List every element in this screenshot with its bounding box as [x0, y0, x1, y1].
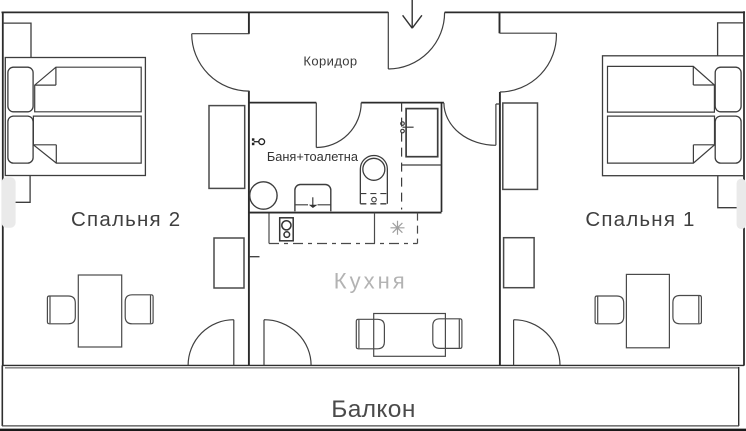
svg-text:Коридор: Коридор — [303, 54, 357, 69]
svg-text:Спальня 1: Спальня 1 — [585, 208, 695, 231]
svg-text:Балкон: Балкон — [331, 396, 416, 423]
svg-text:Кухня: Кухня — [334, 268, 408, 293]
svg-text:Баня+тоалетна: Баня+тоалетна — [267, 149, 359, 164]
svg-text:Спальня 2: Спальня 2 — [71, 208, 181, 231]
